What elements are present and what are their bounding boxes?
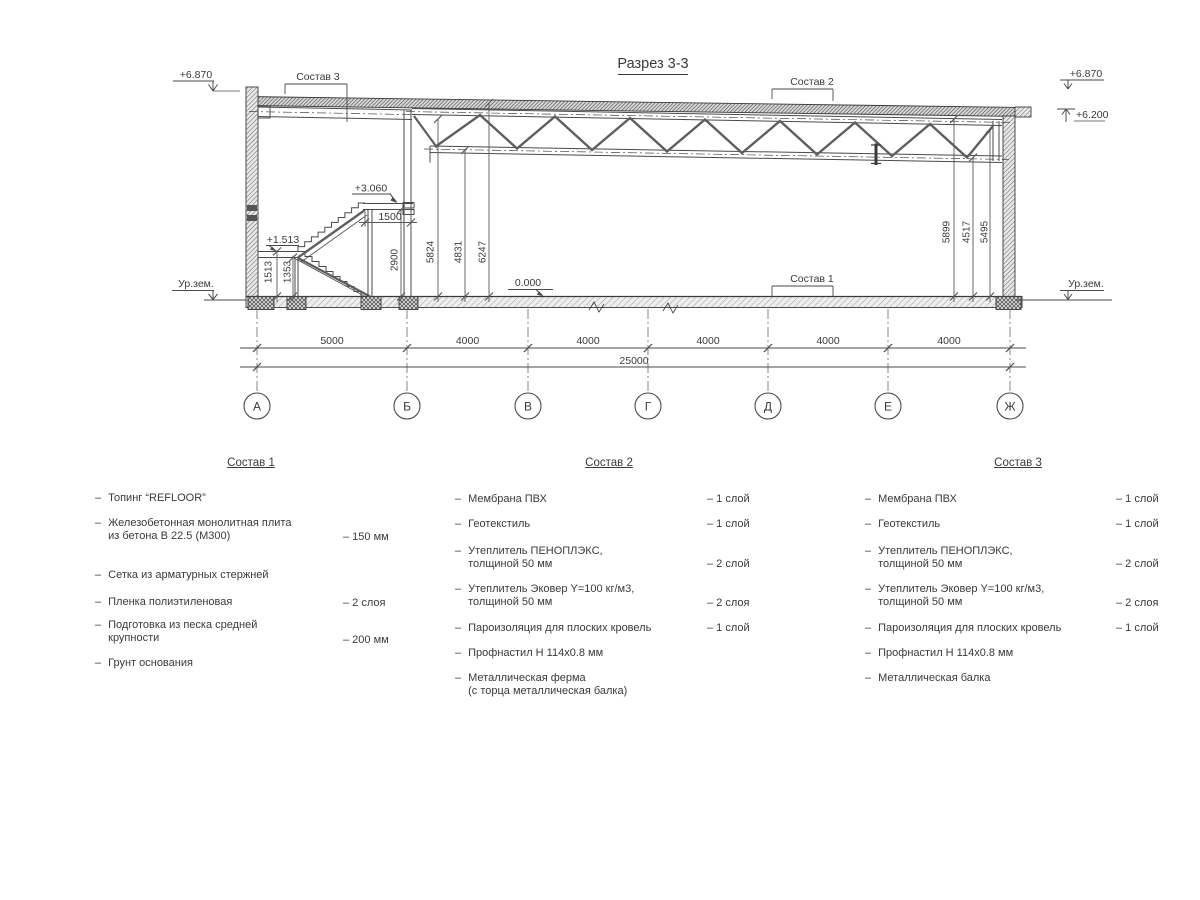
item-value: – 1 слой: [707, 622, 750, 635]
elevation-left-top: +6.870: [173, 69, 240, 91]
section-drawing: Разрез 3-3: [0, 0, 1200, 445]
item-text: Геотекстиль: [468, 518, 530, 531]
axis-label: А: [253, 400, 261, 414]
span-dim: 4000: [456, 335, 480, 347]
leader-sostav1-label: Состав 1: [790, 273, 834, 285]
list-header: Состав 3: [865, 457, 1171, 469]
vdim-4517: 4517: [962, 220, 973, 243]
foundation-pad: [248, 297, 274, 310]
axis-lines: [257, 309, 1010, 393]
elevation-right-low: +6.200: [1057, 109, 1109, 122]
item-dash: –: [455, 518, 461, 531]
elevation-right-top: +6.870: [1060, 68, 1104, 89]
item-text: Утеплитель Эковер Y=100 кг/м3,: [468, 583, 634, 596]
material-list-1: Состав 1 – Топинг “REFLOOR” – Железобето…: [95, 452, 407, 712]
item-text: из бетона В 22.5 (М300): [108, 530, 291, 543]
list-item: – Утеплитель ПЕНОПЛЭКС,толщиной 50 мм: [865, 545, 1013, 571]
elevation-landing: +1.513: [266, 234, 299, 251]
item-dash: –: [95, 657, 101, 670]
list-header: Состав 2: [455, 457, 763, 469]
item-dash: –: [95, 619, 101, 645]
item-text: (с торца металлическая балка): [468, 685, 627, 698]
material-list-2: Состав 2 – Мембрана ПВХ – 1 слой – Геоте…: [455, 452, 763, 712]
dim-1500: 1500: [378, 211, 402, 223]
item-text: Топинг “REFLOOR”: [108, 492, 206, 505]
vdim-6247: 6247: [478, 240, 489, 263]
item-text: Профнастил Н 114х0.8 мм: [468, 647, 603, 660]
item-text: толщиной 50 мм: [468, 596, 634, 609]
list-item: – Металлическая балка: [865, 672, 990, 685]
span-dim: 4000: [696, 335, 720, 347]
item-text: Пароизоляция для плоских кровель: [468, 622, 651, 635]
vdim-5824: 5824: [426, 240, 437, 263]
vdim-5899: 5899: [942, 220, 953, 243]
item-text: Утеплитель ПЕНОПЛЭКС,: [468, 545, 602, 558]
item-value: – 1 слой: [1116, 493, 1159, 506]
item-value: – 2 слоя: [343, 597, 385, 610]
elevation-value: +6.870: [180, 69, 213, 81]
list-header: Состав 1: [95, 457, 407, 469]
stair-upper-flight: [298, 203, 365, 252]
item-value: – 1 слой: [707, 518, 750, 531]
item-value: – 1 слой: [707, 493, 750, 506]
axis-label: Ж: [1004, 400, 1015, 414]
dimension-row-total: 25000: [240, 355, 1026, 371]
axis-label: Б: [403, 400, 411, 414]
item-value: – 1 слой: [1116, 518, 1159, 531]
list-item: – Сетка из арматурных стержней: [95, 569, 269, 582]
elevation-value: +6.870: [1070, 68, 1103, 80]
list-item: – Профнастил Н 114х0.8 мм: [455, 647, 603, 660]
foundation-pad: [361, 297, 381, 310]
stair-upper-stringer: [298, 210, 365, 258]
item-text: Подготовка из песка средней: [108, 619, 257, 632]
elevation-platform: +3.060: [352, 183, 397, 204]
item-dash: –: [455, 545, 461, 571]
list-item: – Мембрана ПВХ: [865, 493, 957, 506]
ground-level-label: Ур.зем.: [178, 278, 214, 290]
item-dash: –: [95, 492, 101, 505]
item-text: Мембрана ПВХ: [468, 493, 547, 506]
item-dash: –: [95, 517, 101, 543]
item-text: Утеплитель ПЕНОПЛЭКС,: [878, 545, 1012, 558]
item-dash: –: [455, 583, 461, 609]
leader-sostav2-label: Состав 2: [790, 76, 834, 88]
vdim-5495: 5495: [980, 220, 991, 243]
elevation-value: +1.513: [267, 234, 300, 246]
item-dash: –: [865, 493, 871, 506]
item-dash: –: [865, 672, 871, 685]
vdim-1353: 1353: [283, 260, 294, 283]
axis-label: Д: [764, 400, 772, 414]
item-text: Утеплитель Эковер Y=100 кг/м3,: [878, 583, 1044, 596]
item-dash: –: [95, 596, 101, 609]
elevation-floor: 0.000: [508, 277, 553, 296]
title-text: Разрез 3-3: [617, 56, 688, 72]
item-text: Металлическая ферма: [468, 672, 627, 685]
item-value: – 150 мм: [343, 531, 389, 544]
item-dash: –: [455, 672, 461, 698]
roof-truss: [406, 109, 1010, 166]
item-dash: –: [865, 518, 871, 531]
item-value: – 2 слоя: [707, 597, 749, 610]
blueprint-page: { "bullet": "–", "drawing": { "title": "…: [0, 0, 1200, 900]
list-item: – Утеплитель Эковер Y=100 кг/м3,толщиной…: [455, 583, 634, 609]
item-value: – 2 слой: [1116, 558, 1159, 571]
item-text: Мембрана ПВХ: [878, 493, 957, 506]
leader-sostav3: Состав 3: [285, 71, 347, 122]
item-dash: –: [455, 622, 461, 635]
list-item: – Подготовка из песка среднейкрупности: [95, 619, 257, 645]
item-text: Профнастил Н 114х0.8 мм: [878, 647, 1013, 660]
total-dim: 25000: [619, 355, 648, 367]
vertical-dimensions: 1513 1353 2900 1500 5824 4831 6247: [264, 99, 995, 302]
item-dash: –: [865, 647, 871, 660]
foundation-pad: [399, 297, 418, 310]
left-wall: [246, 87, 258, 297]
elevation-value: +6.200: [1076, 109, 1109, 121]
right-wall: [1003, 116, 1015, 297]
item-text: Пленка полиэтиленовая: [108, 596, 232, 609]
list-item: – Пароизоляция для плоских кровель: [865, 622, 1061, 635]
item-text: крупности: [108, 632, 257, 645]
item-text: Железобетонная монолитная плита: [108, 517, 291, 530]
list-item: – Металлическая ферма(с торца металличес…: [455, 672, 627, 698]
span-dim: 4000: [576, 335, 600, 347]
foundation-pad: [287, 297, 306, 310]
list-item: – Мембрана ПВХ: [455, 493, 547, 506]
axis-label: Е: [884, 400, 892, 414]
list-item: – Утеплитель Эковер Y=100 кг/м3,толщиной…: [865, 583, 1044, 609]
span-dim: 4000: [816, 335, 840, 347]
item-value: – 2 слой: [707, 558, 750, 571]
elevation-value: 0.000: [515, 277, 541, 289]
leader-sostav3-label: Состав 3: [296, 71, 340, 83]
roof-edge-plate: [1015, 107, 1031, 117]
section-3-3-svg: Разрез 3-3: [0, 0, 1200, 445]
foundation-pad: [996, 297, 1021, 310]
list-item: – Геотекстиль: [455, 518, 530, 531]
item-value: – 2 слоя: [1116, 597, 1158, 610]
ground-level-label: Ур.зем.: [1068, 278, 1104, 290]
ground-level-right: Ур.зем.: [1060, 278, 1104, 300]
axis-label: В: [524, 400, 532, 414]
item-text: Сетка из арматурных стержней: [108, 569, 268, 582]
axis-bubbles: А Б В Г Д Е Ж: [244, 393, 1023, 419]
material-list-3: Состав 3 – Мембрана ПВХ – 1 слой – Геоте…: [865, 452, 1171, 712]
vdim-1513: 1513: [264, 260, 275, 283]
span-dim: 5000: [320, 335, 344, 347]
drawing-title: Разрез 3-3: [617, 56, 688, 75]
item-dash: –: [865, 622, 871, 635]
roof-slab: [246, 97, 1022, 117]
item-dash: –: [865, 583, 871, 609]
list-item: – Геотекстиль: [865, 518, 940, 531]
item-value: – 1 слой: [1116, 622, 1159, 635]
item-text: Грунт основания: [108, 657, 193, 670]
list-item: – Профнастил Н 114х0.8 мм: [865, 647, 1013, 660]
axis-label: Г: [645, 400, 652, 414]
span-dim: 4000: [937, 335, 961, 347]
item-dash: –: [455, 647, 461, 660]
item-text: Пароизоляция для плоских кровель: [878, 622, 1061, 635]
leader-sostav2: Состав 2: [772, 76, 834, 101]
floor-slab: [246, 297, 1022, 314]
vdim-2900: 2900: [390, 248, 401, 271]
list-item: – Железобетонная монолитная плитаиз бето…: [95, 517, 291, 543]
item-text: толщиной 50 мм: [468, 558, 602, 571]
roof-beam: [249, 107, 420, 120]
dimension-row-spans: 5000 4000 4000 4000 4000 4000: [240, 335, 1026, 352]
ground-level-left: Ур.зем.: [172, 278, 218, 300]
item-text: Металлическая балка: [878, 672, 990, 685]
leader-sostav1: Состав 1: [772, 273, 834, 296]
list-item: – Пленка полиэтиленовая: [95, 596, 232, 609]
item-text: толщиной 50 мм: [878, 558, 1012, 571]
list-item: – Утеплитель ПЕНОПЛЭКС,толщиной 50 мм: [455, 545, 603, 571]
item-dash: –: [95, 569, 101, 582]
list-item: – Пароизоляция для плоских кровель: [455, 622, 651, 635]
list-item: – Топинг “REFLOOR”: [95, 492, 206, 505]
elevation-value: +3.060: [355, 183, 388, 195]
vdim-4831: 4831: [454, 240, 465, 263]
item-dash: –: [865, 545, 871, 571]
item-value: – 200 мм: [343, 634, 389, 647]
item-dash: –: [455, 493, 461, 506]
item-text: толщиной 50 мм: [878, 596, 1044, 609]
stair-lower-stringer: [298, 258, 370, 297]
list-item: – Грунт основания: [95, 657, 193, 670]
item-text: Геотекстиль: [878, 518, 940, 531]
